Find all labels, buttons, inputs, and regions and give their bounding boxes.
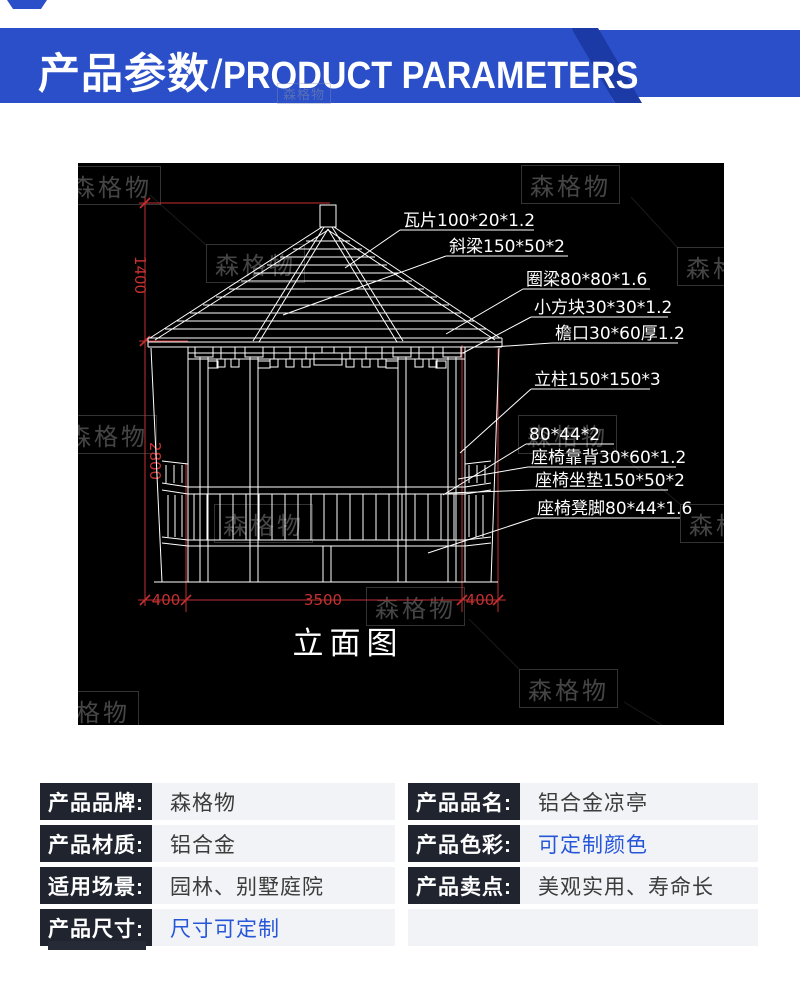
dimension-lines (138, 197, 506, 612)
dim-height-lower: 2800 (146, 442, 164, 480)
page-title: 产品参数/PRODUCT PARAMETERS (38, 40, 685, 101)
dimension-labels: 1400 2800 400 3500 400 (131, 256, 494, 609)
spec-value-material: 铝合金 (152, 825, 395, 862)
spec-row-name: 产品品名: 铝合金凉亭 (408, 783, 758, 820)
watermark-remnant (48, 941, 146, 950)
product-parameters-page: 产品参数/PRODUCT PARAMETERS 森格物 森格物 森格物 森格物 … (0, 0, 800, 987)
side-backrests (162, 461, 491, 483)
annotation-eave: 檐口30*60厚1.2 (555, 324, 685, 344)
spec-label-color: 产品色彩: (408, 825, 520, 862)
watermark-light: 森格物 (277, 83, 331, 104)
page-title-divider: / (211, 51, 222, 97)
annotation-backrest: 座椅靠背30*60*1.2 (531, 448, 686, 468)
annotation-hip-beam: 斜梁150*50*2 (449, 237, 565, 257)
gazebo-structure (148, 205, 680, 582)
spec-row-empty (408, 909, 758, 946)
annotation-column: 立柱150*150*3 (534, 370, 661, 390)
annotation-block: 小方块30*30*1.2 (534, 298, 672, 318)
annotation-cushion: 座椅坐垫150*50*2 (535, 471, 685, 491)
spec-column-left: 产品品牌: 森格物 产品材质: 铝合金 适用场景: 园林、别墅庭院 产品尺寸: … (40, 783, 395, 946)
dim-bottom-right: 400 (466, 591, 495, 609)
spec-label-scene: 适用场景: (40, 867, 152, 904)
spec-row-selling-point: 产品卖点: 美观实用、寿命长 (408, 867, 758, 904)
eave-fascia (148, 338, 502, 347)
spec-value-size: 尺寸可定制 (152, 909, 395, 946)
balusters (168, 494, 483, 540)
spec-label-selling-point: 产品卖点: (408, 867, 520, 904)
annotation-tile: 瓦片100*20*1.2 (403, 211, 535, 231)
roof-finial (320, 205, 336, 227)
cad-elevation-canvas: 森格物 森格物 森格物 森格物 森格物 森格物 森格物 森格物 森格物 森格物 … (78, 163, 724, 725)
annotation-ring-beam: 圈梁80*80*1.6 (526, 270, 647, 290)
page-title-cn: 产品参数 (38, 50, 210, 97)
spec-value-name: 铝合金凉亭 (520, 783, 758, 820)
roof-hips (150, 227, 500, 342)
spec-row-color: 产品色彩: 可定制颜色 (408, 825, 758, 862)
spec-row-material: 产品材质: 铝合金 (40, 825, 395, 862)
spec-value-brand: 森格物 (152, 783, 395, 820)
railing (162, 483, 491, 582)
spec-label-name: 产品品名: (408, 783, 520, 820)
spec-value-scene: 园林、别墅庭院 (152, 867, 395, 904)
annotation-rail: 80*44*2 (529, 425, 600, 445)
banner-corner-tab (7, 0, 47, 9)
cad-elevation-svg: 1400 2800 400 3500 400 (78, 163, 724, 725)
spec-empty-cell (408, 909, 758, 946)
dim-height-upper: 1400 (131, 256, 149, 294)
dim-bottom-center: 3500 (304, 591, 342, 609)
spec-value-color: 可定制颜色 (520, 825, 758, 862)
dimension-ticks (140, 198, 503, 605)
spec-row-brand: 产品品牌: 森格物 (40, 783, 395, 820)
spec-label-material: 产品材质: (40, 825, 152, 862)
frieze-band (188, 347, 465, 368)
spec-column-right: 产品品名: 铝合金凉亭 产品色彩: 可定制颜色 产品卖点: 美观实用、寿命长 (408, 783, 758, 946)
roof-battens (165, 241, 486, 329)
spec-row-scene: 适用场景: 园林、别墅庭院 (40, 867, 395, 904)
annotation-bench-leg: 座椅凳脚80*44*1.6 (537, 499, 692, 519)
drawing-title: 立面图 (293, 626, 404, 662)
spec-value-selling-point: 美观实用、寿命长 (520, 867, 758, 904)
dim-bottom-left: 400 (152, 591, 181, 609)
spec-label-brand: 产品品牌: (40, 783, 152, 820)
